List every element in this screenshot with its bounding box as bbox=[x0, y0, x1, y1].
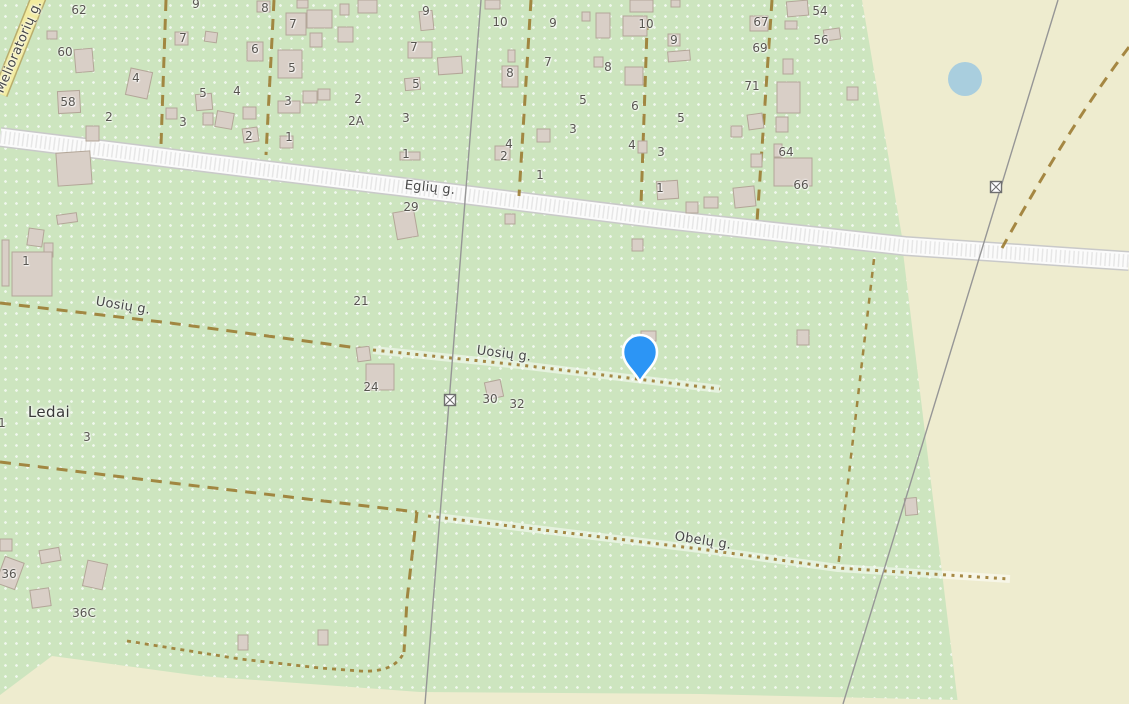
building bbox=[632, 239, 643, 251]
building bbox=[797, 330, 809, 345]
building bbox=[280, 136, 293, 148]
building bbox=[393, 209, 418, 239]
power-line-west bbox=[425, 0, 481, 704]
building bbox=[257, 1, 270, 12]
building bbox=[56, 213, 77, 225]
building bbox=[731, 126, 742, 137]
building bbox=[195, 93, 212, 110]
building bbox=[537, 129, 550, 142]
plot-divider-5 bbox=[757, 0, 772, 222]
building bbox=[356, 346, 371, 362]
building bbox=[747, 113, 764, 130]
map-features bbox=[0, 0, 1129, 704]
building bbox=[203, 113, 213, 125]
building bbox=[594, 57, 603, 67]
building bbox=[39, 547, 61, 563]
plot-divider-1 bbox=[161, 0, 166, 145]
farmland-top-right bbox=[862, 0, 1129, 262]
building bbox=[175, 32, 188, 45]
building bbox=[904, 498, 917, 516]
building bbox=[776, 117, 788, 132]
building bbox=[686, 202, 698, 213]
building bbox=[303, 91, 317, 103]
building bbox=[596, 13, 610, 38]
building bbox=[405, 77, 421, 90]
track-field-horizontal bbox=[0, 462, 417, 512]
building bbox=[57, 90, 80, 113]
building bbox=[340, 4, 349, 15]
building bbox=[307, 10, 332, 28]
building bbox=[366, 364, 394, 390]
building bbox=[786, 0, 808, 17]
building bbox=[204, 31, 217, 43]
building bbox=[502, 66, 518, 87]
building bbox=[278, 101, 300, 113]
building bbox=[86, 126, 99, 141]
building bbox=[668, 50, 691, 62]
building bbox=[30, 588, 51, 608]
building bbox=[437, 56, 462, 75]
building bbox=[668, 34, 680, 46]
building bbox=[485, 0, 500, 9]
power-pole-icon bbox=[991, 182, 1002, 193]
building bbox=[777, 82, 800, 113]
building bbox=[625, 67, 643, 85]
building bbox=[495, 146, 510, 160]
building bbox=[338, 27, 353, 42]
building bbox=[671, 0, 680, 7]
building bbox=[582, 12, 590, 21]
building bbox=[83, 560, 108, 590]
building bbox=[847, 87, 858, 100]
building bbox=[166, 108, 177, 119]
building bbox=[243, 107, 256, 119]
building bbox=[751, 154, 762, 167]
track-uosiu-west bbox=[0, 303, 373, 350]
map-canvas[interactable]: 626058742395468275322A191075318429107856… bbox=[0, 0, 1129, 704]
building bbox=[484, 380, 503, 400]
building bbox=[238, 635, 248, 650]
building bbox=[125, 68, 152, 99]
road-melioratoriu bbox=[0, 0, 40, 94]
building bbox=[286, 13, 306, 35]
building bbox=[0, 539, 12, 551]
building bbox=[318, 89, 330, 100]
building bbox=[0, 556, 24, 589]
building bbox=[278, 50, 302, 78]
plot-divider-2 bbox=[266, 0, 274, 155]
building bbox=[247, 42, 263, 61]
building bbox=[56, 151, 92, 186]
farmland-areas bbox=[0, 0, 1129, 704]
building bbox=[310, 33, 322, 47]
buildings-layer bbox=[0, 0, 918, 650]
building bbox=[733, 186, 756, 208]
building bbox=[704, 197, 718, 208]
building bbox=[656, 180, 678, 199]
building bbox=[774, 158, 812, 186]
building bbox=[400, 152, 420, 160]
building bbox=[358, 0, 377, 13]
building bbox=[47, 31, 57, 39]
building bbox=[242, 127, 259, 143]
building bbox=[318, 630, 328, 645]
building bbox=[74, 48, 94, 72]
building bbox=[785, 21, 797, 29]
building bbox=[774, 144, 782, 157]
track-mid-right bbox=[838, 259, 874, 568]
building bbox=[408, 42, 432, 58]
track-field-bottom bbox=[127, 641, 404, 671]
building bbox=[638, 141, 647, 153]
building bbox=[27, 228, 44, 247]
track-underlays bbox=[373, 350, 1010, 579]
building bbox=[215, 111, 235, 130]
building bbox=[508, 50, 515, 62]
building bbox=[630, 0, 653, 12]
farmland-right bbox=[903, 252, 1129, 704]
power-pole-icon bbox=[445, 395, 456, 406]
building bbox=[12, 252, 52, 296]
building bbox=[505, 214, 515, 224]
building bbox=[419, 10, 434, 30]
plot-divider-3 bbox=[519, 0, 531, 196]
building bbox=[750, 16, 768, 31]
building bbox=[2, 240, 9, 286]
building bbox=[623, 16, 647, 36]
track-field-vertical bbox=[404, 512, 417, 652]
pond-water bbox=[948, 62, 982, 96]
building bbox=[297, 0, 308, 8]
building bbox=[823, 28, 840, 41]
building bbox=[783, 59, 793, 74]
